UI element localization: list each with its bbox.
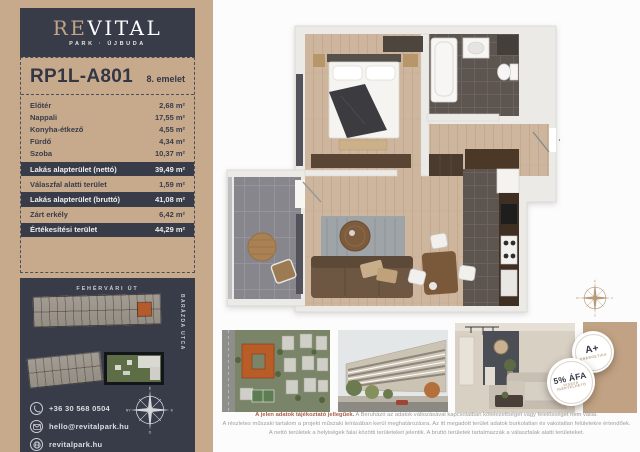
compass-north-label: É — [594, 279, 596, 283]
wall-bedroom-bathroom — [421, 34, 429, 176]
stove-burner — [511, 254, 516, 259]
kitchen-appliance — [501, 204, 517, 224]
plant — [504, 359, 516, 371]
dining-chair — [458, 265, 476, 281]
building-floorplate-b — [27, 351, 104, 389]
coffee-table — [495, 395, 523, 407]
disclaimer-line-3: A nettó területek a helyiségek falai köz… — [269, 429, 584, 438]
room-value: 1,59 m² — [159, 180, 185, 189]
balcony-door-opening — [295, 180, 305, 208]
unit-info-box: RP1L-A801 8. emelet Előtér2,68 m² Nappal… — [20, 57, 195, 273]
bedroom-window — [296, 74, 303, 166]
wall-bathroom-entry — [427, 114, 499, 121]
table-row: Konyha-étkező4,55 m² — [21, 123, 194, 135]
contact-email[interactable]: hello@revitalpark.hu — [30, 420, 129, 433]
total-label: Lakás alapterület (nettó) — [30, 165, 117, 174]
table-row: Fürdő4,34 m² — [21, 136, 194, 148]
unit-floor: 8. emelet — [146, 74, 185, 84]
vat-badge: 5% ÁFA VISSZA IGÉNYELHETŐ — [547, 358, 595, 406]
site-building-shape — [123, 371, 130, 375]
contact-block: +36 30 568 0504 hello@revitalpark.hu rev… — [30, 402, 129, 451]
total-value: 39,49 m² — [155, 165, 185, 174]
nightstand — [313, 54, 325, 67]
contact-phone-text: +36 30 568 0504 — [49, 404, 110, 413]
unit-title-row: RP1L-A801 8. emelet — [21, 58, 194, 95]
bed-headboard — [327, 54, 401, 62]
table-row: Nappali17,55 m² — [21, 111, 194, 123]
bedroom-dresser — [311, 154, 411, 168]
exterior-render-photo — [338, 330, 448, 412]
bedroom-wardrobe — [383, 36, 423, 52]
compass-east-label: K — [171, 408, 174, 412]
brand-name-prefix: RE — [53, 16, 88, 40]
bathroom-cabinet — [497, 35, 518, 55]
phone-icon — [30, 402, 43, 415]
balcony-glazing — [228, 177, 232, 299]
room-label: Válaszfal alatti terület — [30, 180, 107, 189]
aerial-photo — [222, 330, 330, 412]
coffee-table — [340, 221, 370, 251]
total-label: Lakás alapterület (bruttó) — [30, 195, 120, 204]
site-overview-ground — [107, 355, 161, 382]
wall-mirror — [494, 340, 508, 354]
table-row: Előtér2,68 m² — [21, 99, 194, 111]
total-value: 44,29 m² — [155, 225, 185, 234]
nightstand — [403, 54, 418, 67]
wall-bedroom-living — [305, 170, 397, 176]
compass-north-label: É — [149, 386, 152, 391]
table-row: Zárt erkély6,42 m² — [21, 209, 194, 221]
highlighted-unit-marker — [138, 303, 151, 316]
brand-name-suffix: VITAL — [87, 16, 162, 40]
globe-icon — [30, 438, 43, 451]
brand-logo: REVITAL PARK · ÚJBUDA — [20, 8, 195, 57]
contact-website[interactable]: revitalpark.hu — [30, 438, 129, 451]
stove — [501, 236, 517, 264]
kitchen-upper-cabinets — [465, 149, 519, 169]
compass-south-label: D — [594, 314, 596, 317]
street-label-barazda-utca: BARÁZDA UTCA — [179, 294, 185, 351]
room-label: Szoba — [30, 149, 52, 158]
room-value: 4,34 m² — [159, 137, 185, 146]
entry-closet — [429, 154, 463, 176]
room-label: Előtér — [30, 101, 51, 110]
table-row-total: Értékesítési terület44,29 m² — [21, 223, 194, 237]
compass-rose-dark: É K D NY — [126, 386, 174, 434]
contact-email-text: hello@revitalpark.hu — [49, 422, 129, 431]
car — [396, 400, 408, 405]
sidebar: REVITAL PARK · ÚJBUDA RP1L-A801 8. emele… — [0, 0, 213, 452]
site-overview-thumbnail — [104, 352, 164, 385]
bed-pillow — [366, 66, 395, 80]
sink-basin — [468, 42, 484, 54]
toilet-bowl — [498, 64, 511, 80]
compass-east-label: K — [611, 296, 613, 300]
brand-subtitle: PARK · ÚJBUDA — [69, 41, 146, 47]
street-label-fehervari-ut: FEHÉRVÁRI ÚT — [20, 286, 195, 292]
compass-south-label: D — [149, 431, 152, 434]
table-decor — [349, 230, 355, 236]
brochure-page: REVITAL PARK · ÚJBUDA RP1L-A801 8. emele… — [0, 0, 640, 452]
bed-bench — [339, 140, 387, 150]
site-building-shape — [115, 365, 121, 370]
unit-id: RP1L-A801 — [30, 66, 133, 88]
table-row: Válaszfal alatti terület1,59 m² — [21, 178, 194, 190]
toilet-tank — [510, 64, 518, 80]
compass-west-label: NY — [576, 296, 580, 300]
disclaimer: A jelen adatok tájékoztató jellegűek. A … — [213, 411, 640, 438]
bed-pillow — [333, 66, 362, 80]
mail-icon — [30, 420, 43, 433]
kitchen-white-cabinet — [497, 169, 519, 193]
table-row-total: Lakás alapterület (bruttó)41,08 m² — [21, 192, 194, 206]
total-value: 41,08 m² — [155, 195, 185, 204]
table-row: Szoba10,37 m² — [21, 148, 194, 160]
door — [459, 337, 474, 385]
dining-chair — [430, 233, 448, 250]
room-label: Fürdő — [30, 137, 51, 146]
brand-name: REVITAL — [53, 18, 163, 38]
kitchen-base-cabinet — [501, 270, 517, 296]
room-value: 10,37 m² — [155, 149, 185, 158]
disclaimer-line-2: A részletes műszaki tartalom a projekt m… — [223, 420, 631, 429]
compass-rose-tan: É K D NY — [576, 279, 614, 317]
room-value: 17,55 m² — [155, 113, 185, 122]
dining-table — [422, 251, 459, 295]
total-label: Értékesítési terület — [30, 225, 97, 234]
room-label: Nappali — [30, 113, 57, 122]
disclaimer-line-1-rest: A Beruházó az adatok változásával kapcso… — [354, 412, 598, 418]
living-balcony-window — [296, 214, 303, 294]
room-value: 4,55 m² — [159, 125, 185, 134]
contact-phone[interactable]: +36 30 568 0504 — [30, 402, 129, 415]
site-plan-panel: FEHÉRVÁRI ÚT BARÁZDA UTCA — [20, 278, 195, 452]
dinnerware — [429, 282, 437, 290]
stove-burner — [504, 254, 509, 259]
room-value: 2,68 m² — [159, 101, 185, 110]
disclaimer-lead: A jelen adatok tájékoztató jellegűek. — [255, 412, 354, 418]
site-building-shape — [150, 367, 160, 380]
disclaimer-line-1: A jelen adatok tájékoztató jellegűek. A … — [255, 411, 598, 420]
table-row-total: Lakás alapterület (nettó)39,49 m² — [21, 162, 194, 176]
dining-chair — [485, 367, 495, 385]
entry-door-opening — [549, 128, 556, 152]
stove-burner — [511, 241, 516, 246]
contact-website-text: revitalpark.hu — [49, 440, 102, 449]
area-table: Előtér2,68 m² Nappali17,55 m² Konyha-étk… — [21, 95, 194, 237]
entrance-arrow-icon — [559, 130, 560, 150]
stove-burner — [504, 241, 509, 246]
room-value: 6,42 m² — [159, 210, 185, 219]
site-building-shape — [127, 360, 132, 365]
table-plant — [502, 392, 509, 399]
compass-west-label: NY — [126, 408, 131, 412]
floorplan-render — [215, 4, 560, 318]
room-label: Konyha-étkező — [30, 125, 83, 134]
building-floorplate-a — [33, 293, 162, 327]
room-label: Zárt erkély — [30, 210, 68, 219]
